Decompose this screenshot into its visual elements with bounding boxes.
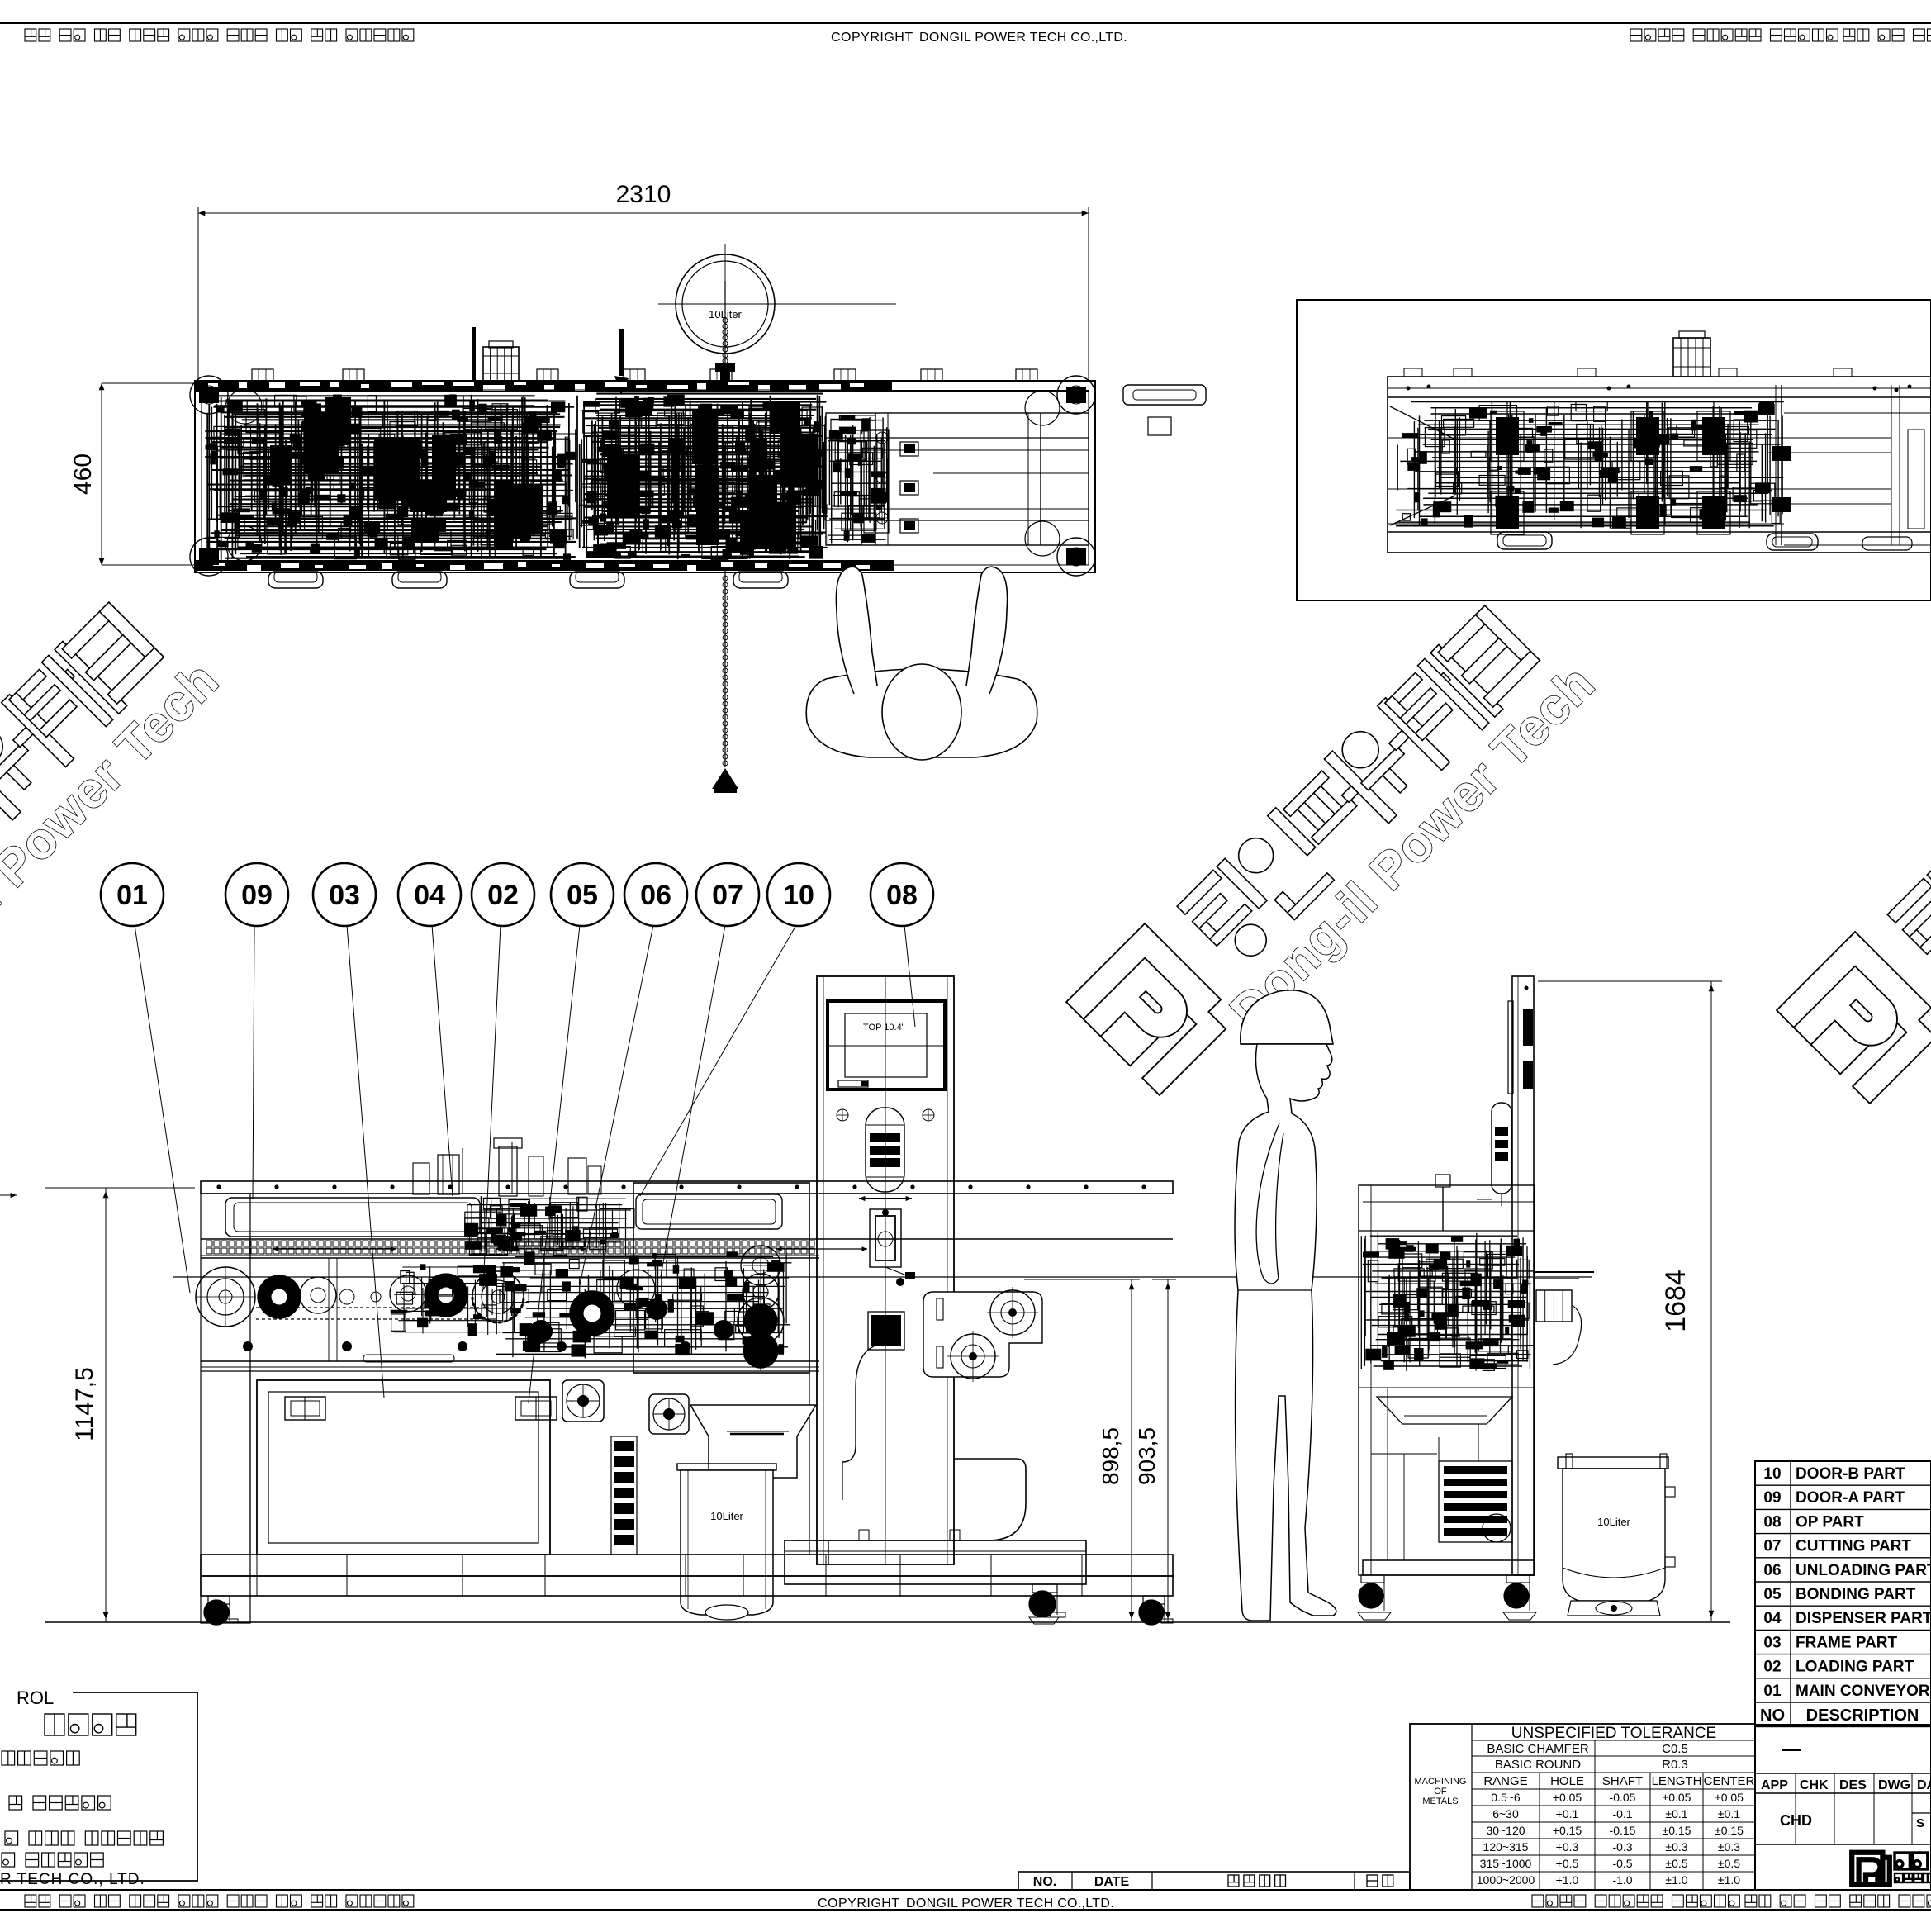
svg-text:05: 05 [1763,1586,1782,1603]
svg-text:METALS: METALS [1422,1797,1458,1806]
svg-text:±0.15: ±0.15 [1663,1824,1691,1837]
svg-text:APP: APP [1761,1778,1788,1792]
svg-text:1000~2000: 1000~2000 [1477,1873,1535,1887]
svg-text:-0.05: -0.05 [1610,1791,1636,1804]
svg-text:±0.05: ±0.05 [1663,1791,1691,1804]
svg-text:TOP 10.4": TOP 10.4" [863,1023,905,1032]
svg-text:2310: 2310 [616,181,671,208]
svg-text:R0.3: R0.3 [1662,1758,1688,1772]
svg-text:10: 10 [1763,1465,1781,1483]
svg-text:-0.5: -0.5 [1612,1857,1632,1870]
svg-text:+0.15: +0.15 [1553,1824,1582,1837]
svg-text:S: S [1916,1816,1924,1830]
svg-text:+0.3: +0.3 [1556,1840,1579,1854]
svg-text:05: 05 [567,880,598,911]
svg-text:0.5~6: 0.5~6 [1491,1791,1521,1804]
svg-text:10Liter: 10Liter [1597,1516,1630,1528]
svg-text:UNLOADING PART: UNLOADING PART [1796,1562,1931,1579]
svg-text:02: 02 [487,880,519,911]
svg-text:+0.5: +0.5 [1556,1857,1579,1870]
svg-text:6~30: 6~30 [1492,1807,1519,1820]
svg-text:NO: NO [1760,1707,1785,1725]
svg-text:±0.1: ±0.1 [1665,1807,1687,1820]
svg-text:01: 01 [1763,1683,1782,1700]
svg-text:CUTTING PART: CUTTING PART [1796,1538,1911,1555]
svg-text:MACHINING: MACHINING [1415,1777,1467,1787]
svg-text:CENTER: CENTER [1704,1774,1755,1788]
svg-text:BASIC CHAMFER: BASIC CHAMFER [1487,1742,1589,1756]
svg-text:DONGIL POWER TECH CO.,LTD.: DONGIL POWER TECH CO.,LTD. [906,1896,1114,1911]
svg-text:UNSPECIFIED TOLERANCE: UNSPECIFIED TOLERANCE [1511,1725,1716,1742]
svg-text:CHK: CHK [1800,1778,1829,1792]
svg-text:RANGE: RANGE [1483,1774,1527,1788]
svg-text:MAIN CONVEYOR P: MAIN CONVEYOR P [1796,1683,1931,1700]
svg-text:08: 08 [1763,1513,1781,1531]
svg-text:03: 03 [1763,1634,1781,1651]
svg-text:04: 04 [414,880,445,911]
svg-text:R TECH CO., LTD.: R TECH CO., LTD. [0,1871,145,1888]
svg-text:10: 10 [783,880,814,911]
svg-text:460: 460 [69,453,97,495]
svg-text:LENGTH: LENGTH [1652,1774,1702,1788]
svg-text:DA: DA [1917,1778,1931,1792]
svg-text:OP PART: OP PART [1796,1513,1864,1531]
svg-text:C0.5: C0.5 [1662,1742,1688,1756]
svg-text:±0.3: ±0.3 [1718,1840,1740,1854]
svg-text:07: 07 [1763,1538,1781,1555]
svg-text:09: 09 [1763,1489,1781,1507]
svg-text:LOADING PART: LOADING PART [1796,1659,1914,1676]
svg-text:120~315: 120~315 [1483,1840,1529,1854]
svg-text:DISPENSER PART: DISPENSER PART [1796,1610,1931,1627]
svg-text:-1.0: -1.0 [1612,1873,1632,1887]
svg-text:10Liter: 10Liter [710,1510,743,1522]
svg-text:-0.1: -0.1 [1612,1807,1632,1820]
svg-text:04: 04 [1763,1610,1782,1627]
svg-text:-0.3: -0.3 [1612,1840,1632,1854]
svg-text:06: 06 [640,880,671,911]
svg-text:898,5: 898,5 [1098,1427,1123,1485]
svg-text:SHAFT: SHAFT [1602,1774,1643,1788]
svg-text:07: 07 [712,880,743,911]
svg-text:FRAME PART: FRAME PART [1796,1634,1898,1651]
svg-text:1147,5: 1147,5 [71,1367,98,1441]
svg-text:COPYRIGHT: COPYRIGHT [831,31,913,45]
svg-text:-0.15: -0.15 [1610,1824,1636,1837]
svg-text:BONDING PART: BONDING PART [1796,1586,1916,1603]
svg-text:DESCRIPTION: DESCRIPTION [1806,1707,1919,1725]
svg-text:DES: DES [1839,1778,1867,1792]
svg-text:903,5: 903,5 [1134,1427,1160,1485]
svg-text:NO.: NO. [1033,1875,1056,1889]
svg-text:DWG: DWG [1878,1778,1910,1792]
svg-text:DOOR-B PART: DOOR-B PART [1796,1465,1905,1483]
svg-text:1684: 1684 [1660,1270,1691,1332]
svg-text:OF: OF [1434,1787,1447,1797]
svg-text:±1.0: ±1.0 [1665,1873,1687,1887]
svg-text:+1.0: +1.0 [1556,1873,1579,1887]
svg-text:±0.3: ±0.3 [1665,1840,1687,1854]
svg-text:±1.0: ±1.0 [1718,1873,1740,1887]
svg-text:ROL: ROL [17,1688,54,1708]
svg-text:315~1000: 315~1000 [1480,1857,1532,1870]
svg-text:03: 03 [329,880,360,911]
svg-text:+0.1: +0.1 [1556,1807,1579,1820]
svg-text:06: 06 [1763,1562,1781,1579]
svg-text:DOOR-A PART: DOOR-A PART [1796,1489,1905,1507]
svg-text:COPYRIGHT: COPYRIGHT [818,1896,900,1911]
svg-text:DONGIL POWER TECH CO.,LTD.: DONGIL POWER TECH CO.,LTD. [919,31,1127,45]
svg-text:±0.15: ±0.15 [1715,1824,1744,1837]
svg-text:DATE: DATE [1094,1875,1130,1889]
svg-text:±0.5: ±0.5 [1665,1857,1687,1870]
svg-text:02: 02 [1763,1659,1781,1676]
svg-text:30~120: 30~120 [1486,1824,1525,1837]
svg-text:01: 01 [116,880,148,911]
svg-text:±0.1: ±0.1 [1718,1807,1740,1820]
svg-text:±0.05: ±0.05 [1715,1791,1744,1804]
svg-text:±0.5: ±0.5 [1718,1857,1740,1870]
svg-text:+0.05: +0.05 [1553,1791,1582,1804]
svg-text:HOLE: HOLE [1550,1774,1584,1788]
svg-text:08: 08 [886,880,918,911]
svg-text:CHD: CHD [1780,1812,1812,1829]
svg-text:BASIC ROUND: BASIC ROUND [1495,1758,1581,1772]
svg-text:09: 09 [241,880,273,911]
svg-text:—: — [1782,1739,1801,1759]
